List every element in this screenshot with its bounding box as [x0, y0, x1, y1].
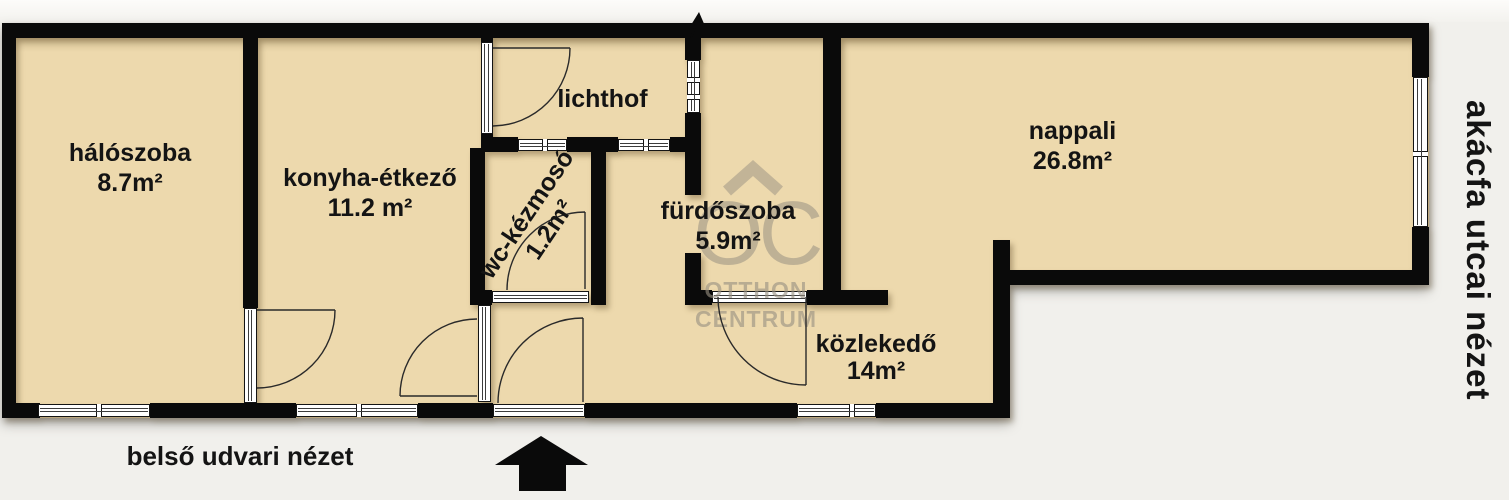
wall [993, 240, 1010, 418]
room-name: fürdőszoba [628, 196, 828, 226]
wall [2, 23, 16, 418]
door-opening [478, 305, 491, 402]
room-name: lichthof [505, 84, 700, 114]
room-area: 5.9m² [628, 226, 828, 256]
room-name: konyha-étkező [262, 163, 478, 193]
room-label-nappali: nappali 26.8m² [925, 116, 1220, 176]
room-area: 26.8m² [925, 146, 1220, 176]
watermark-text: CENTRUM [678, 306, 834, 333]
wall [481, 137, 518, 152]
wall [585, 403, 797, 418]
floor-plan: OC OTTHON CENTRUM hálószoba 8.7m² konyha… [0, 0, 1509, 500]
window [38, 404, 150, 417]
door-opening [481, 42, 493, 134]
wall [2, 23, 1429, 38]
room-label-kozlekedo: közlekedő 14m² [776, 331, 976, 385]
room-label-lichthof: lichthof [505, 84, 700, 114]
door-opening [244, 308, 257, 403]
window [296, 404, 418, 417]
caption-courtyard-view: belső udvari nézet [60, 441, 420, 472]
room-name: hálószoba [15, 138, 245, 168]
room-area: 11.2 m² [262, 193, 478, 223]
wall [1412, 227, 1429, 285]
wall [1412, 23, 1429, 77]
wall [243, 38, 258, 308]
wall [2, 403, 40, 418]
room-label-furdoszoba: fürdőszoba 5.9m² [628, 196, 828, 256]
wall [685, 38, 701, 60]
room-name: közlekedő [776, 331, 976, 358]
window [1413, 77, 1428, 227]
window [618, 139, 670, 151]
door-opening [493, 404, 585, 417]
room-label-haloszoba: hálószoba 8.7m² [15, 138, 245, 198]
room-name: nappali [925, 116, 1220, 146]
wall [150, 403, 296, 418]
room-area: 14m² [776, 358, 976, 385]
wall [685, 113, 701, 195]
room-area: 8.7m² [15, 168, 245, 198]
wall [1010, 270, 1429, 285]
window [797, 404, 876, 417]
watermark-text: OTTHON [678, 277, 834, 304]
wall [876, 403, 1010, 418]
room-label-konyha: konyha-étkező 11.2 m² [262, 163, 478, 223]
caption-street-view: akácfa utcai nézet [1435, 0, 1497, 500]
wall [418, 403, 493, 418]
